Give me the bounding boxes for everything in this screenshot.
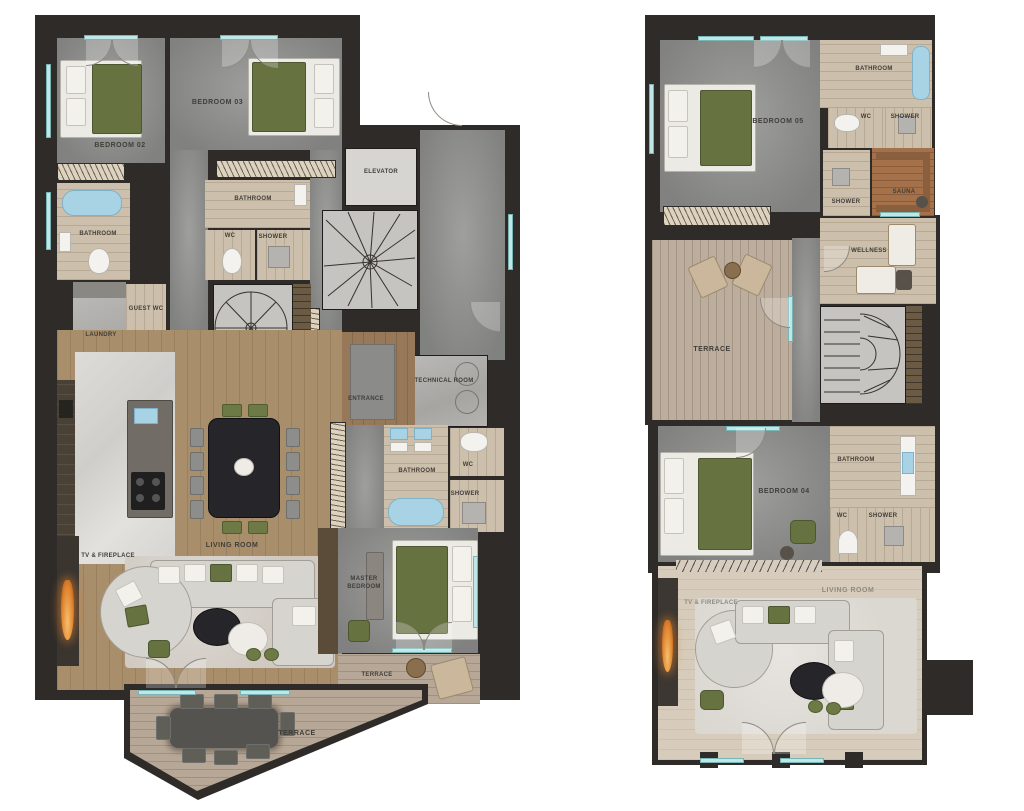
room-label: WC — [852, 114, 880, 122]
armchair-green — [790, 520, 816, 544]
bed-blanket — [698, 458, 752, 550]
shower-tray — [884, 526, 904, 546]
side-table — [780, 546, 794, 560]
window — [649, 84, 654, 154]
pouf-green — [700, 690, 724, 710]
room-label: SHOWER — [822, 199, 870, 207]
cushion-green — [768, 606, 790, 624]
room-label: BEDROOM 05 — [736, 118, 820, 127]
floor-plan-right: BEDROOM 05 BATHROOM WC SHOWER SHOWER SAU… — [0, 0, 1024, 811]
stool — [826, 702, 841, 715]
room-label: LIVING ROOM — [810, 587, 886, 596]
shower-tray — [832, 168, 850, 186]
room-label: SHOWER — [855, 513, 911, 521]
stool — [808, 700, 823, 713]
pillow — [668, 126, 688, 158]
side-table — [896, 270, 912, 290]
shelving — [906, 306, 922, 404]
lounge-chair — [888, 224, 916, 266]
pillow — [664, 498, 684, 534]
sauna-stove — [916, 196, 928, 208]
pillow — [794, 606, 816, 624]
vanity — [880, 44, 908, 56]
room-label: TERRACE — [684, 346, 740, 355]
hallway — [792, 238, 820, 422]
side-table — [724, 262, 741, 279]
window — [780, 758, 824, 763]
window — [698, 36, 754, 41]
pillow — [668, 90, 688, 122]
room-label: TV & FIREPLACE — [682, 600, 740, 608]
wardrobe — [663, 206, 771, 226]
sink — [902, 452, 914, 474]
room-label: BEDROOM 04 — [741, 488, 827, 497]
pillow — [664, 458, 684, 494]
staircase-lines — [820, 306, 906, 404]
floor-plan-canvas: BEDROOM 02 BATHROOM BEDROOM 03 BATHROOM … — [0, 0, 1024, 811]
window — [700, 758, 744, 763]
room-bathroom-04 — [830, 426, 935, 508]
lounge-chair — [856, 266, 896, 294]
room-label: SAUNA — [882, 189, 926, 197]
bed-blanket — [700, 90, 752, 166]
fireplace-fire — [662, 620, 673, 672]
wall-block — [925, 660, 973, 715]
room-label: SHOWER — [882, 114, 928, 122]
pillow — [742, 606, 764, 624]
pillow — [834, 640, 854, 662]
pillar — [845, 752, 863, 768]
room-label: WELLNESS — [841, 248, 897, 256]
room-label: BATHROOM — [844, 66, 904, 74]
toilet — [838, 530, 858, 554]
room-label: BATHROOM — [821, 457, 891, 465]
folding-glass-doors — [676, 560, 822, 572]
bathtub — [912, 46, 930, 100]
window — [880, 212, 920, 217]
